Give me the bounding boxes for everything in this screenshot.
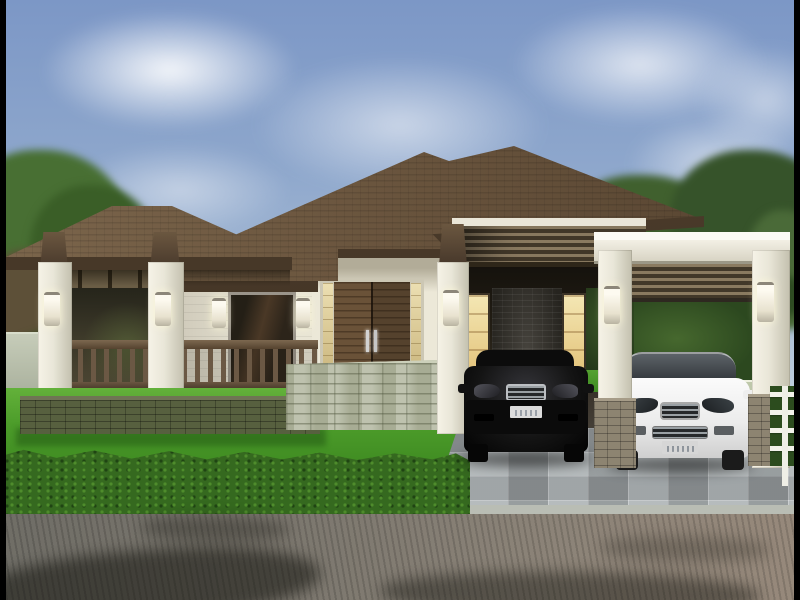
column-stone-base bbox=[594, 398, 636, 468]
sedan-chrome-grille bbox=[506, 384, 546, 401]
veranda-column-right bbox=[148, 262, 184, 402]
sedan-foglight-right bbox=[558, 414, 578, 421]
rendering-canvas bbox=[0, 0, 800, 600]
black-sedan bbox=[464, 348, 588, 466]
sedan-foglight-left bbox=[474, 414, 494, 421]
right-black-bar bbox=[794, 0, 800, 600]
entry-sidelight-right bbox=[411, 283, 421, 369]
flat-roof-top bbox=[594, 232, 790, 240]
sedan-wheel-right bbox=[564, 444, 584, 462]
veranda-column-left bbox=[38, 262, 72, 402]
coupe-wheel-right bbox=[722, 450, 744, 470]
railing-top-rail bbox=[52, 340, 318, 349]
coupe-side-intake-right bbox=[714, 426, 734, 435]
pillar-lamp bbox=[443, 290, 459, 326]
column-lamp bbox=[44, 292, 60, 326]
pillar-corbel bbox=[439, 224, 467, 266]
column-lamp bbox=[757, 282, 774, 322]
door-handle-right bbox=[374, 330, 377, 352]
sedan-license-plate bbox=[510, 406, 542, 418]
wall-lamp bbox=[296, 298, 310, 328]
wall-lamp bbox=[212, 298, 226, 328]
veranda-brick-base bbox=[20, 396, 320, 434]
sedan-mirror-left bbox=[458, 384, 470, 393]
coupe-license-plate bbox=[662, 441, 698, 454]
entry-stone-wall bbox=[286, 360, 438, 430]
column-lamp bbox=[604, 286, 620, 324]
right-carport-slat-beam bbox=[612, 264, 760, 302]
column-lamp bbox=[155, 292, 171, 326]
entry-sidelight-left bbox=[323, 283, 333, 369]
railing-balusters bbox=[52, 349, 318, 382]
carport-beam-white bbox=[452, 218, 646, 226]
front-hedge bbox=[0, 446, 470, 520]
coupe-grille bbox=[660, 402, 700, 420]
sedan-wheel-left bbox=[468, 444, 488, 462]
fence-post bbox=[782, 386, 788, 486]
cloud bbox=[690, 40, 800, 160]
left-black-bar bbox=[0, 0, 6, 600]
sedan-mirror-right bbox=[582, 384, 594, 393]
wood-double-door bbox=[334, 282, 410, 370]
sedan-headlight-right bbox=[552, 384, 578, 398]
door-handle-left bbox=[366, 330, 369, 352]
coupe-lower-intake bbox=[652, 426, 708, 439]
